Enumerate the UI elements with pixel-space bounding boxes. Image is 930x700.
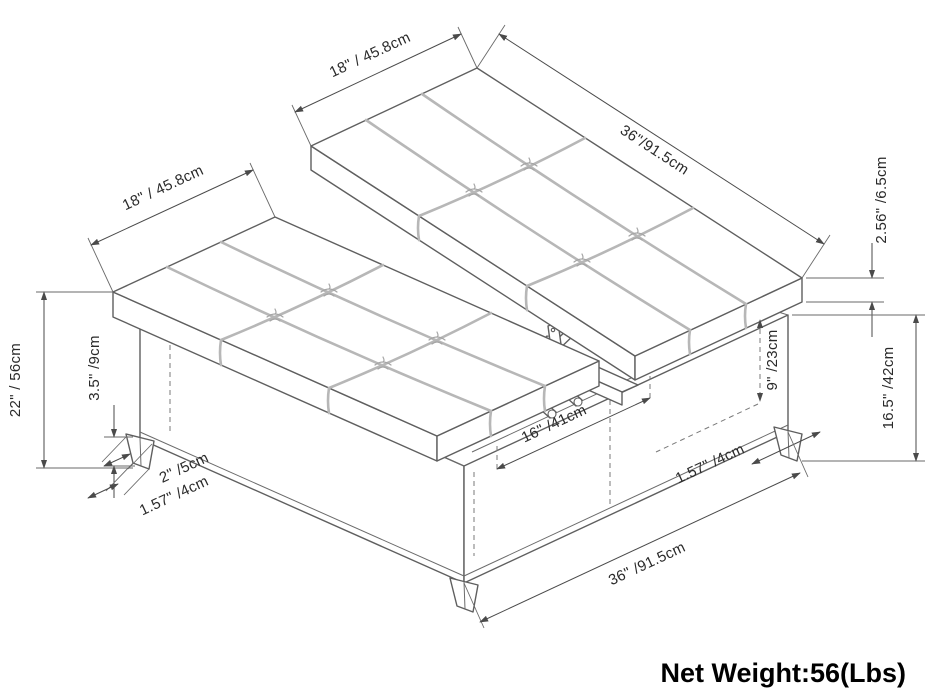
dim-label: 3.5" /9cm: [86, 335, 103, 401]
dim-leg-height: 3.5" /9cm: [86, 335, 135, 498]
dim-label: 22" / 56cm: [7, 343, 24, 417]
dim-label: 2.56" /6.5cm: [873, 156, 890, 243]
dim-label: 16.5" /42cm: [880, 347, 897, 430]
dim-label: 18" / 45.8cm: [120, 162, 206, 214]
dim-label: 9" /23cm: [764, 329, 781, 390]
dim-overall-height: 22" / 56cm: [7, 292, 133, 468]
line-drawing: 18" / 45.8cm 18" / 45.8cm 36"/91.5cm 2.5…: [0, 0, 930, 700]
dim-lid-thickness: 2.56" /6.5cm: [806, 156, 890, 337]
dim-label: 18" / 45.8cm: [327, 29, 413, 81]
net-weight-text: Net Weight:56(Lbs): [660, 658, 906, 689]
dim-base-height: 16.5" /42cm: [792, 315, 925, 461]
dim-inner-depth: 9" /23cm: [760, 320, 781, 401]
ottoman-dimension-diagram: 18" / 45.8cm 18" / 45.8cm 36"/91.5cm 2.5…: [0, 0, 930, 700]
dim-label: 36" /91.5cm: [606, 539, 688, 589]
